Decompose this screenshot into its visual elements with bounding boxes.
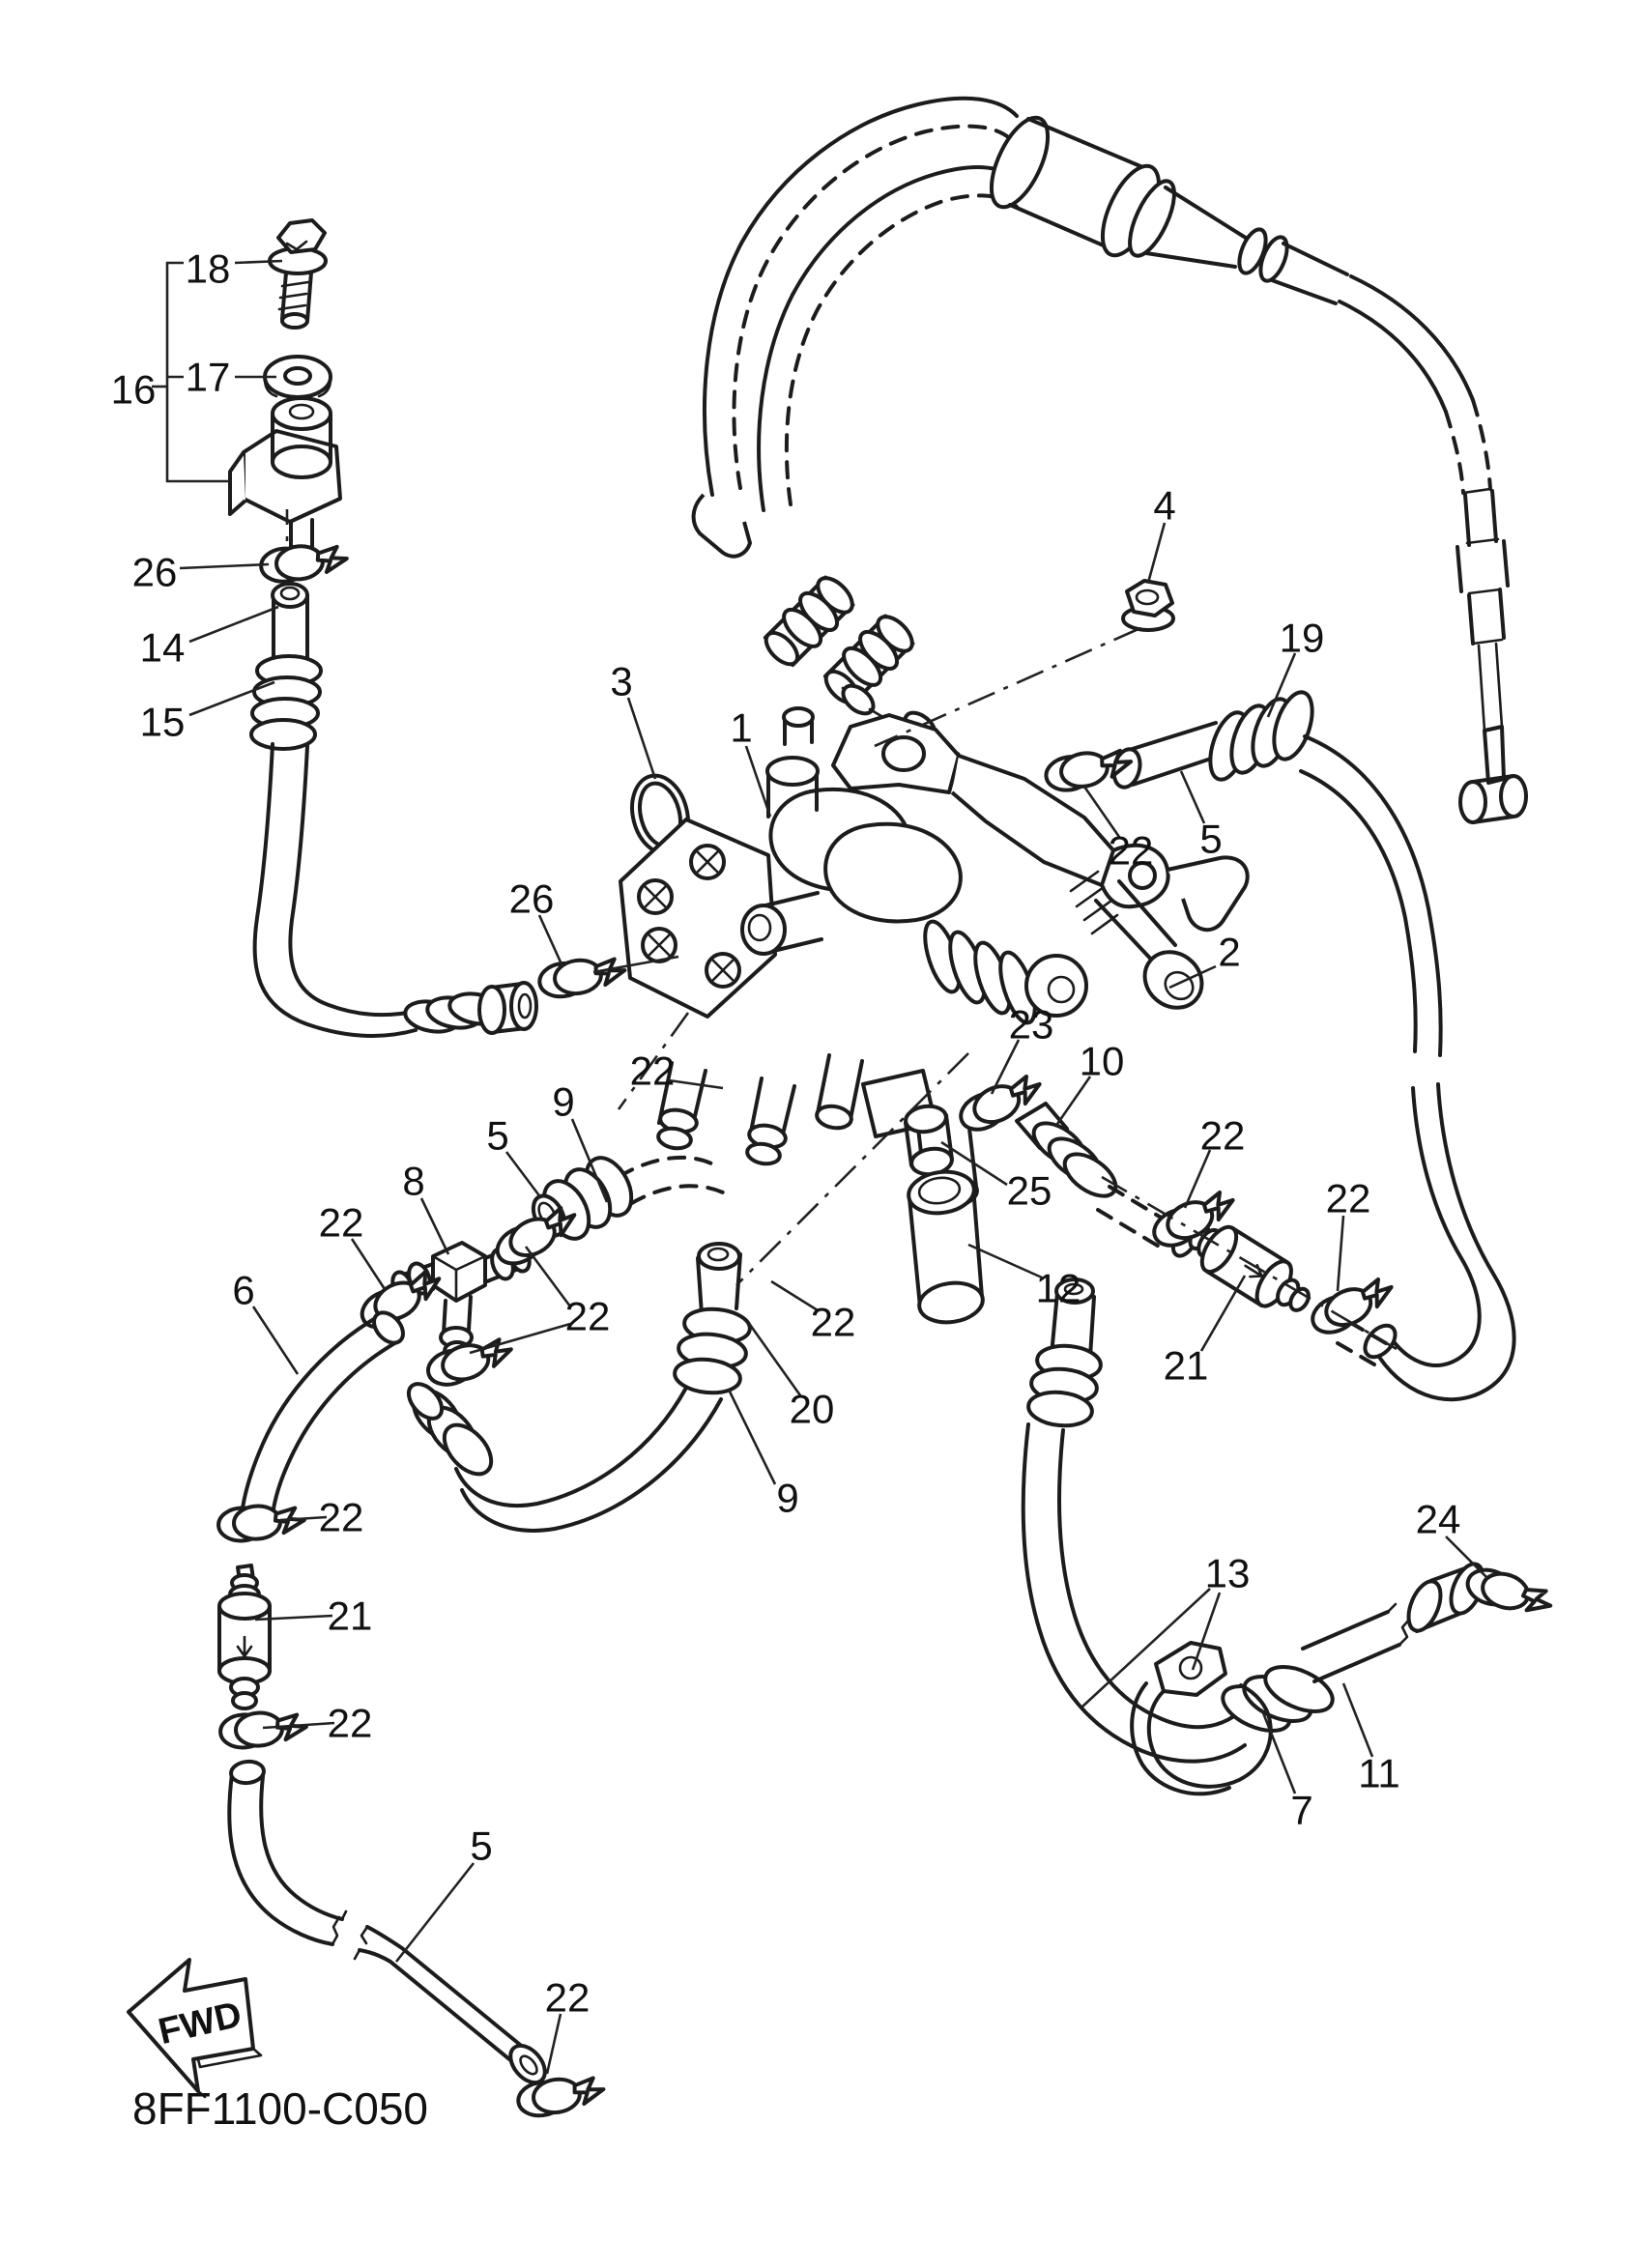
hose-15 [251, 656, 536, 1036]
leader-line-4 [1148, 523, 1165, 583]
callout-20: 20 [790, 1387, 835, 1432]
part-code: 8FF1100-C050 [132, 2083, 428, 2134]
fwd-arrow: FWD [129, 1960, 261, 2097]
callout-22: 22 [565, 1294, 611, 1339]
callout-26: 26 [509, 876, 555, 922]
callout-21: 21 [1164, 1343, 1209, 1389]
hose-19 [1110, 688, 1514, 1400]
callout-2: 2 [1218, 930, 1240, 975]
callout-7: 7 [1290, 1788, 1312, 1833]
clamp-22-col-bottom [219, 1710, 307, 1749]
callout-22: 22 [1326, 1176, 1371, 1221]
clamp-26-top [260, 542, 349, 584]
leader-line-5 [506, 1152, 541, 1198]
nut-4 [1123, 581, 1173, 630]
callout-19: 19 [1280, 616, 1325, 661]
callout-13: 13 [1205, 1551, 1251, 1596]
diagram-artwork: FWD 8FF1100-C050 18171626141531419225226… [0, 0, 1643, 2268]
cylinder-25 [904, 1104, 953, 1177]
callout-22: 22 [545, 1975, 591, 2021]
callout-22: 22 [1109, 828, 1154, 874]
leader-line-9 [729, 1390, 775, 1484]
parts-diagram-page: FWD 8FF1100-C050 18171626141531419225226… [0, 0, 1643, 2268]
leader-line-5 [396, 1863, 474, 1962]
callout-14: 14 [140, 625, 186, 671]
hose-5-bottom [229, 1760, 552, 2089]
leader-line-8 [421, 1198, 448, 1254]
callout-4: 4 [1153, 483, 1175, 529]
leader-line-21 [255, 1616, 332, 1620]
leader-line-14 [189, 607, 278, 642]
leader-line-10 [1055, 1077, 1090, 1127]
callout-16: 16 [111, 367, 157, 413]
leader-line-22 [1185, 1150, 1210, 1208]
callout-22: 22 [328, 1701, 373, 1746]
clamp-22-col-top [217, 1504, 305, 1542]
leader-line-20 [748, 1322, 800, 1395]
callout-3: 3 [610, 659, 632, 704]
callout-5: 5 [470, 1823, 492, 1869]
callout-21: 21 [328, 1593, 373, 1639]
callout-11: 11 [1358, 1751, 1400, 1796]
callout-25: 25 [1007, 1168, 1052, 1214]
leader-line-22 [470, 1324, 570, 1353]
callout-1: 1 [730, 705, 752, 751]
callout-12: 12 [1036, 1266, 1081, 1311]
bolt-18 [270, 220, 326, 328]
callout-9: 9 [552, 1079, 574, 1125]
leader-line-26 [539, 915, 562, 966]
leader-line-22 [669, 1080, 723, 1088]
callout-22: 22 [811, 1300, 856, 1345]
callout-9: 9 [776, 1476, 798, 1521]
damper-bracket-16 [230, 398, 340, 571]
callout-5: 5 [1199, 817, 1222, 862]
callout-24: 24 [1416, 1497, 1461, 1542]
callout-23: 23 [1009, 1002, 1054, 1048]
callout-8: 8 [402, 1159, 424, 1204]
leader-line-21 [1201, 1276, 1245, 1351]
callout-22: 22 [630, 1048, 676, 1094]
filter-21-left [219, 1565, 270, 1708]
leader-line-11 [1343, 1683, 1372, 1757]
leader-line-22 [547, 2014, 561, 2074]
throttle-cables [694, 99, 1526, 822]
leader-line-26 [180, 564, 269, 568]
leader-line-3 [628, 698, 655, 779]
callout-15: 15 [140, 700, 186, 745]
clamp-24 [1463, 1564, 1555, 1622]
callout-5: 5 [486, 1113, 508, 1159]
leader-line-22 [1338, 1216, 1343, 1291]
callout-layer: 1817162614153141922522623102225958226222… [111, 246, 1488, 2075]
leader-line-6 [253, 1306, 298, 1374]
clamp-26-mid [537, 954, 627, 999]
callout-17: 17 [186, 355, 231, 400]
callout-22: 22 [1200, 1113, 1246, 1159]
callout-26: 26 [132, 550, 178, 595]
leader-line-22 [352, 1239, 385, 1289]
callout-22: 22 [319, 1495, 364, 1540]
callout-6: 6 [232, 1268, 254, 1313]
callout-10: 10 [1080, 1039, 1125, 1084]
leader-line-22 [526, 1247, 570, 1306]
callout-18: 18 [186, 246, 231, 292]
callout-22: 22 [319, 1200, 364, 1246]
